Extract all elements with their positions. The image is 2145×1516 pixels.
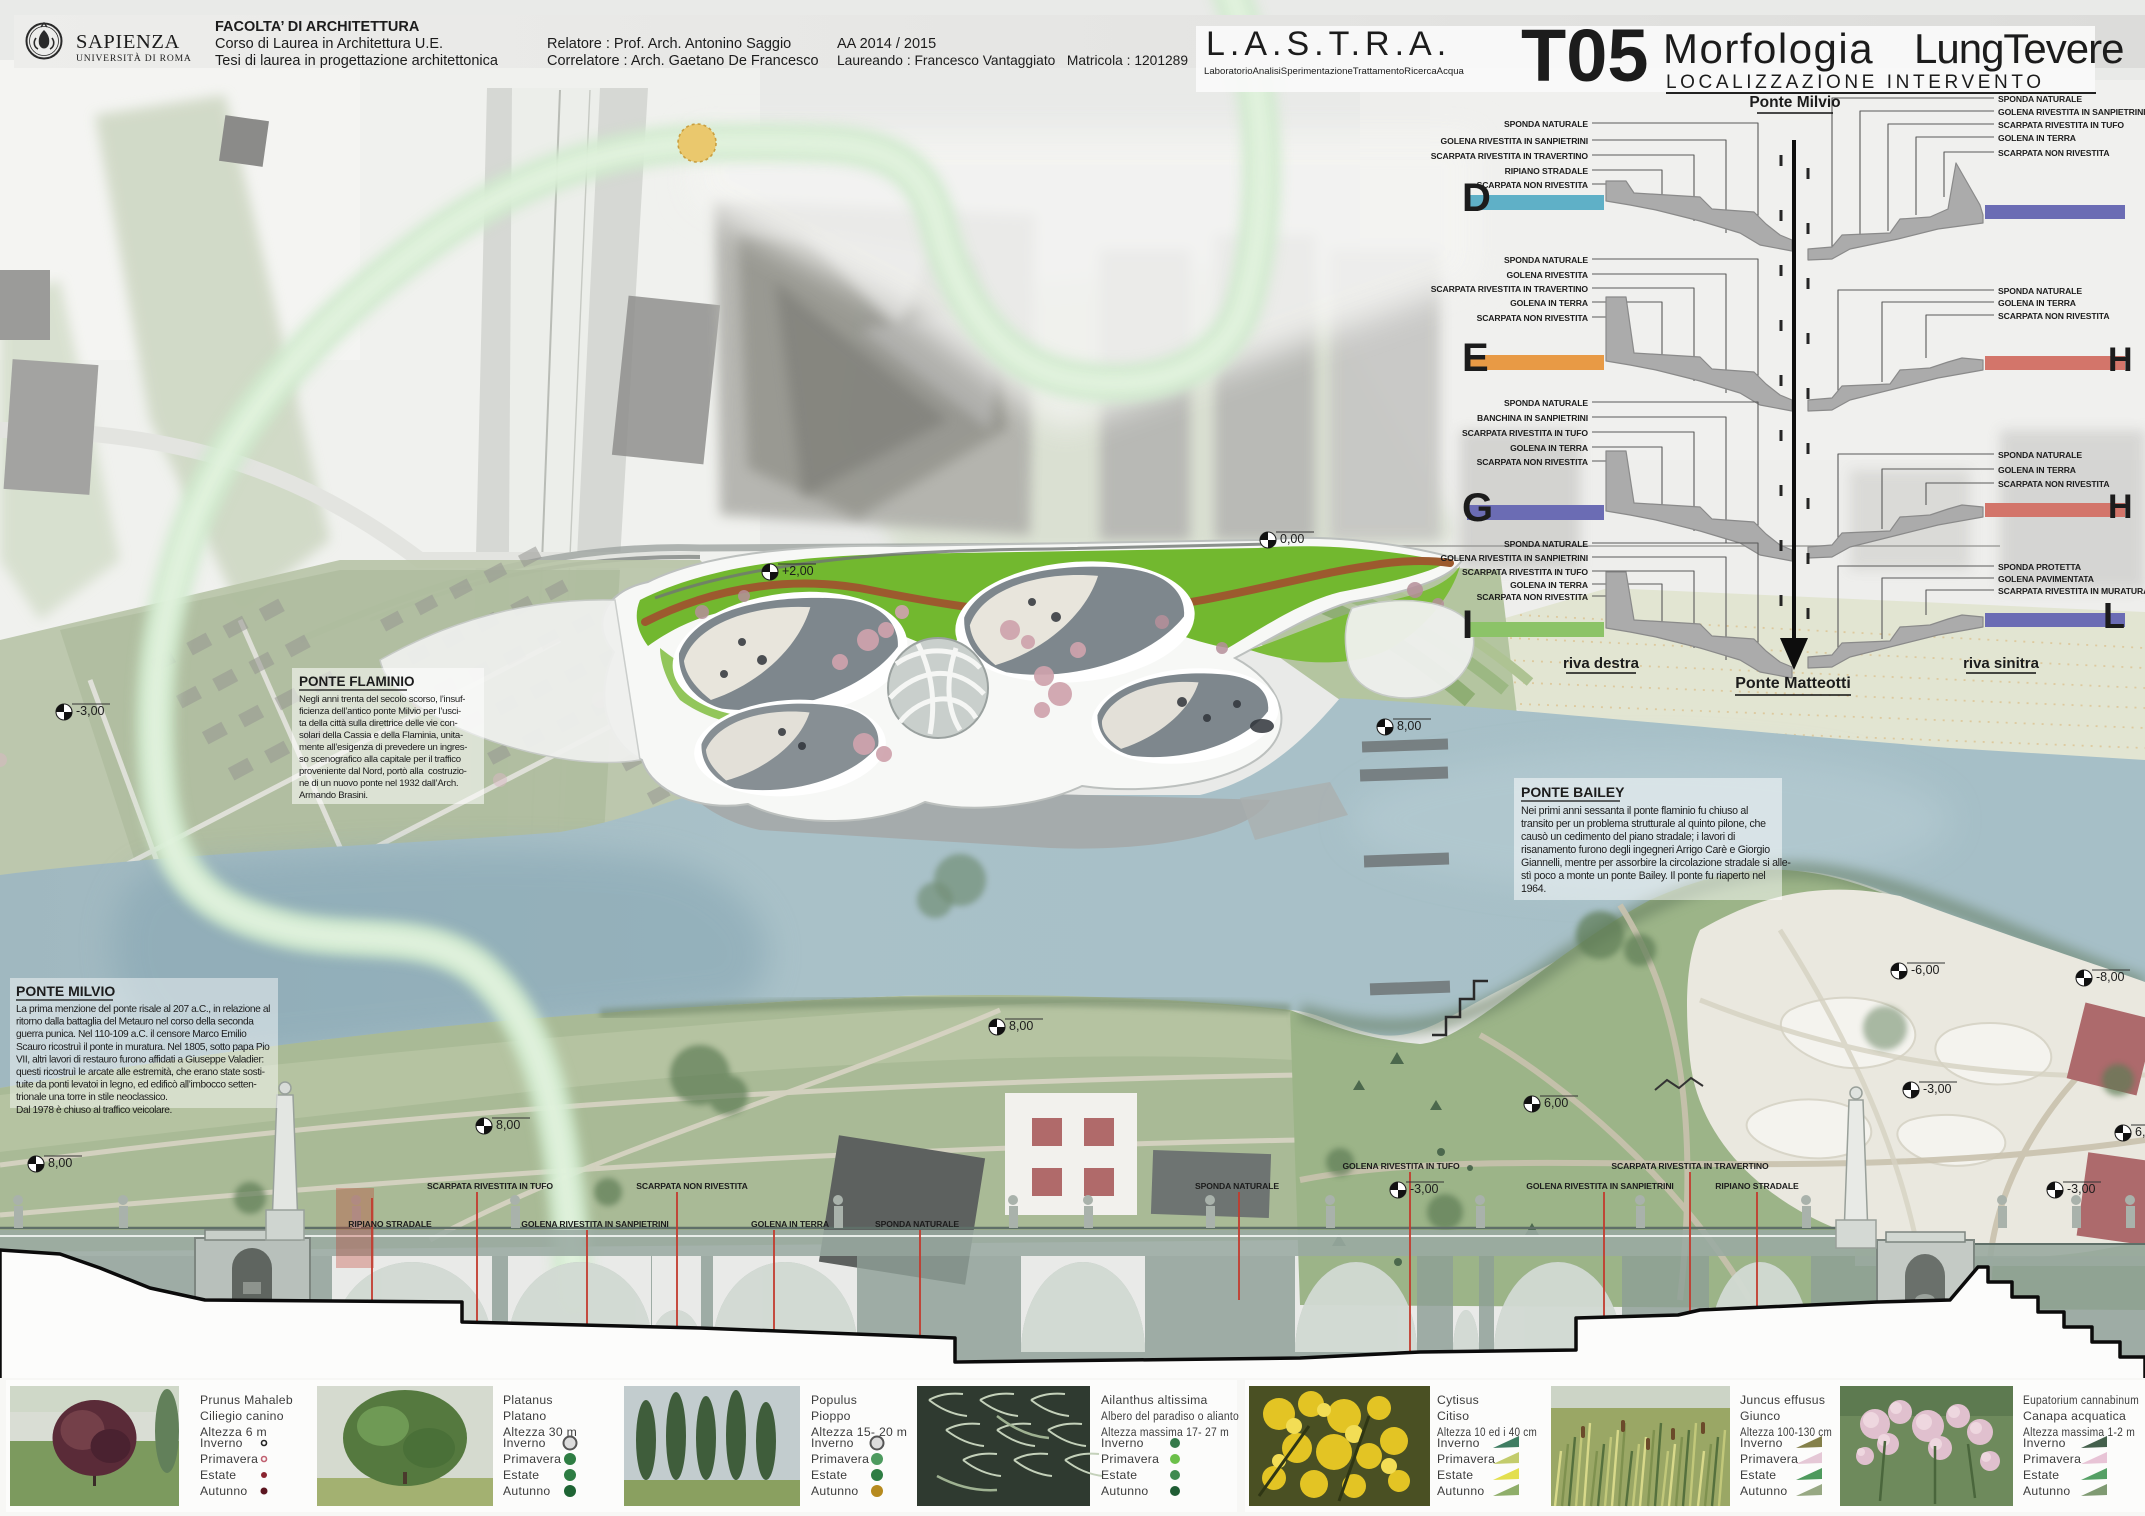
svg-text:Estate: Estate <box>503 1468 539 1482</box>
svg-text:SCARPATA NON RIVESTITA: SCARPATA NON RIVESTITA <box>1998 311 2109 321</box>
svg-text:-6,00: -6,00 <box>1911 963 1940 977</box>
svg-text:Autunno: Autunno <box>1101 1484 1149 1498</box>
svg-text:SPONDA PROTETTA: SPONDA PROTETTA <box>1998 562 2081 572</box>
svg-text:GOLENA PAVIMENTATA: GOLENA PAVIMENTATA <box>1998 574 2094 584</box>
svg-text:I: I <box>1462 603 1473 647</box>
svg-text:Primavera: Primavera <box>1101 1452 1159 1466</box>
svg-text:0,00: 0,00 <box>1280 532 1304 546</box>
svg-text:H: H <box>2108 341 2133 379</box>
svg-text:SCARPATA RIVESTITA IN TUFO: SCARPATA RIVESTITA IN TUFO <box>1462 428 1588 438</box>
svg-text:Cytisus: Cytisus <box>1437 1393 1479 1407</box>
svg-text:Inverno: Inverno <box>1437 1436 1480 1450</box>
svg-text:Ponte Matteotti: Ponte Matteotti <box>1735 675 1851 692</box>
svg-text:Eupatorium cannabinum: Eupatorium cannabinum <box>2023 1393 2139 1407</box>
svg-text:SPONDA NATURALE: SPONDA NATURALE <box>1998 286 2082 296</box>
svg-text:Correlatore : Arch. Gaetano D: Correlatore : Arch. Gaetano De Francesco <box>547 53 819 69</box>
svg-text:RIPIANO STRADALE: RIPIANO STRADALE <box>1505 166 1589 176</box>
svg-text:GOLENA IN TERRA: GOLENA IN TERRA <box>1998 465 2076 475</box>
svg-text:GOLENA RIVESTITA IN SANPIETRIN: GOLENA RIVESTITA IN SANPIETRINI <box>1441 553 1588 563</box>
svg-text:LungTevere: LungTevere <box>1914 25 2124 72</box>
svg-text:Laureando : Francesco Vantaggi: Laureando : Francesco Vantaggiato Matric… <box>837 53 1188 68</box>
svg-text:SCARPATA RIVESTITA IN TRAVERTI: SCARPATA RIVESTITA IN TRAVERTINO <box>1611 1161 1769 1171</box>
svg-text:+2,00: +2,00 <box>782 564 814 578</box>
svg-text:UNIVERSITÀ DI ROMA: UNIVERSITÀ DI ROMA <box>76 52 192 64</box>
svg-text:GOLENA RIVESTITA IN SANPIETRIN: GOLENA RIVESTITA IN SANPIETRINI <box>1441 136 1588 146</box>
svg-text:Autunno: Autunno <box>1740 1484 1788 1498</box>
svg-text:6,00: 6,00 <box>1544 1096 1568 1110</box>
svg-text:Prunus Mahaleb: Prunus Mahaleb <box>200 1393 293 1407</box>
svg-text:GOLENA RIVESTITA IN SANPIETRIN: GOLENA RIVESTITA IN SANPIETRINI <box>1526 1181 1673 1191</box>
svg-text:SAPIENZA: SAPIENZA <box>76 31 180 53</box>
svg-text:8,00: 8,00 <box>1397 719 1421 733</box>
svg-text:GOLENA RIVESTITA: GOLENA RIVESTITA <box>1507 270 1588 280</box>
svg-text:Primavera: Primavera <box>1740 1452 1798 1466</box>
svg-text:SCARPATA NON RIVESTITA: SCARPATA NON RIVESTITA <box>1477 180 1588 190</box>
svg-text:SCARPATA NON RIVESTITA: SCARPATA NON RIVESTITA <box>1477 457 1588 467</box>
svg-text:GOLENA IN TERRA: GOLENA IN TERRA <box>1510 298 1588 308</box>
svg-text:Estate: Estate <box>1101 1468 1137 1482</box>
svg-text:SPONDA NATURALE: SPONDA NATURALE <box>1998 94 2082 104</box>
svg-text:Populus: Populus <box>811 1393 857 1407</box>
svg-text:-3,00: -3,00 <box>76 704 105 718</box>
svg-text:Juncus effusus: Juncus effusus <box>1740 1393 1825 1407</box>
svg-text:Tesi di laurea in progettazion: Tesi di laurea in progettazione architet… <box>215 53 499 69</box>
svg-text:Estate: Estate <box>2023 1468 2059 1482</box>
svg-text:Inverno: Inverno <box>811 1436 854 1450</box>
svg-text:SCARPATA NON RIVESTITA: SCARPATA NON RIVESTITA <box>1477 313 1588 323</box>
svg-text:Autunno: Autunno <box>811 1484 859 1498</box>
svg-text:Primavera: Primavera <box>200 1452 258 1466</box>
svg-text:-8,00: -8,00 <box>2096 970 2125 984</box>
svg-text:Pioppo: Pioppo <box>811 1409 851 1423</box>
svg-text:Estate: Estate <box>811 1468 847 1482</box>
svg-text:Inverno: Inverno <box>503 1436 546 1450</box>
svg-text:GOLENA IN TERRA: GOLENA IN TERRA <box>1998 298 2076 308</box>
svg-text:RIPIANO STRADALE: RIPIANO STRADALE <box>348 1219 432 1229</box>
svg-text:SPONDA NATURALE: SPONDA NATURALE <box>1504 119 1588 129</box>
svg-text:Autunno: Autunno <box>2023 1484 2071 1498</box>
svg-text:Estate: Estate <box>200 1468 236 1482</box>
svg-text:Negli anni trenta del secolo s: Negli anni trenta del secolo scorso, l’i… <box>299 694 467 801</box>
svg-text:Autunno: Autunno <box>200 1484 248 1498</box>
svg-text:AA 2014 / 2015: AA 2014 / 2015 <box>837 36 936 52</box>
svg-text:SPONDA NATURALE: SPONDA NATURALE <box>1504 539 1588 549</box>
svg-text:Platanus: Platanus <box>503 1393 553 1407</box>
svg-text:SPONDA NATURALE: SPONDA NATURALE <box>1998 450 2082 460</box>
svg-text:-3,00: -3,00 <box>1410 1182 1439 1196</box>
svg-text:L: L <box>2103 595 2125 636</box>
svg-text:PONTE FLAMINIO: PONTE FLAMINIO <box>299 674 415 689</box>
svg-text:L.A.S.T.R.A.: L.A.S.T.R.A. <box>1206 25 1451 63</box>
svg-text:SCARPATA RIVESTITA IN TUFO: SCARPATA RIVESTITA IN TUFO <box>427 1181 553 1191</box>
svg-text:Estate: Estate <box>1740 1468 1776 1482</box>
svg-text:Platano: Platano <box>503 1409 546 1423</box>
svg-text:Inverno: Inverno <box>200 1436 243 1450</box>
svg-text:SCARPATA NON RIVESTITA: SCARPATA NON RIVESTITA <box>1477 592 1588 602</box>
svg-text:Albero del paradiso o alianto: Albero del paradiso o alianto <box>1101 1409 1239 1423</box>
svg-text:Canapa acquatica: Canapa acquatica <box>2023 1409 2126 1423</box>
svg-text:Corso di Laurea in Architettur: Corso di Laurea in Architettura U.E. <box>215 36 443 52</box>
svg-text:H: H <box>2108 488 2133 526</box>
svg-text:Ailanthus altissima: Ailanthus altissima <box>1101 1393 1208 1407</box>
svg-text:FACOLTA’ DI ARCHITETTURA: FACOLTA’ DI ARCHITETTURA <box>215 19 420 35</box>
svg-text:BANCHINA IN SANPIETRINI: BANCHINA IN SANPIETRINI <box>1477 413 1588 423</box>
svg-text:E: E <box>1462 336 1489 380</box>
svg-text:8,00: 8,00 <box>48 1156 72 1170</box>
svg-text:Inverno: Inverno <box>1740 1436 1783 1450</box>
svg-text:PONTE BAILEY: PONTE BAILEY <box>1521 784 1625 800</box>
svg-text:SPONDA NATURALE: SPONDA NATURALE <box>1195 1181 1279 1191</box>
svg-text:SCARPATA RIVESTITA IN TRAVERTI: SCARPATA RIVESTITA IN TRAVERTINO <box>1431 151 1589 161</box>
svg-text:Morfologia: Morfologia <box>1663 25 1874 72</box>
svg-text:Nei primi anni sessanta il pon: Nei primi anni sessanta il ponte flamini… <box>1521 805 1791 895</box>
svg-text:GOLENA IN TERRA: GOLENA IN TERRA <box>751 1219 829 1229</box>
svg-text:Primavera: Primavera <box>503 1452 561 1466</box>
svg-text:Primavera: Primavera <box>2023 1452 2081 1466</box>
svg-text:LaboratorioAnalisiSperimentazi: LaboratorioAnalisiSperimentazioneTrattam… <box>1204 66 1465 77</box>
svg-text:Autunno: Autunno <box>503 1484 551 1498</box>
svg-text:riva sinitra: riva sinitra <box>1963 655 2040 672</box>
svg-text:SCARPATA RIVESTITA IN TUFO: SCARPATA RIVESTITA IN TUFO <box>1998 120 2124 130</box>
svg-text:SCARPATA RIVESTITA IN TUFO: SCARPATA RIVESTITA IN TUFO <box>1462 567 1588 577</box>
svg-text:GOLENA RIVESTITA IN SANPIETRIN: GOLENA RIVESTITA IN SANPIETRINI <box>1998 107 2145 117</box>
svg-text:SCARPATA RIVESTITA IN TRAVERTI: SCARPATA RIVESTITA IN TRAVERTINO <box>1431 284 1589 294</box>
svg-text:GOLENA RIVESTITA IN SANPIETRIN: GOLENA RIVESTITA IN SANPIETRINI <box>521 1219 668 1229</box>
svg-text:-3,00: -3,00 <box>2067 1182 2096 1196</box>
svg-text:8,00: 8,00 <box>496 1118 520 1132</box>
svg-text:Primavera: Primavera <box>1437 1452 1495 1466</box>
svg-text:SPONDA NATURALE: SPONDA NATURALE <box>875 1219 959 1229</box>
svg-text:GOLENA IN TERRA: GOLENA IN TERRA <box>1510 580 1588 590</box>
svg-text:riva destra: riva destra <box>1563 655 1640 672</box>
svg-text:Giunco: Giunco <box>1740 1409 1780 1423</box>
svg-text:PONTE MILVIO: PONTE MILVIO <box>16 983 115 999</box>
svg-text:SCARPATA NON RIVESTITA: SCARPATA NON RIVESTITA <box>636 1181 747 1191</box>
svg-text:SPONDA NATURALE: SPONDA NATURALE <box>1504 255 1588 265</box>
svg-text:G: G <box>1462 486 1493 530</box>
svg-text:Citiso: Citiso <box>1437 1409 1469 1423</box>
svg-text:Inverno: Inverno <box>2023 1436 2066 1450</box>
svg-text:Relatore : Prof. Arch. Antonin: Relatore : Prof. Arch. Antonino Saggio <box>547 36 791 52</box>
svg-text:Ciliegio canino: Ciliegio canino <box>200 1409 284 1423</box>
svg-text:-3,00: -3,00 <box>1923 1082 1952 1096</box>
svg-text:D: D <box>1462 176 1491 220</box>
svg-text:Estate: Estate <box>1437 1468 1473 1482</box>
svg-text:Autunno: Autunno <box>1437 1484 1485 1498</box>
svg-text:GOLENA RIVESTITA IN TUFO: GOLENA RIVESTITA IN TUFO <box>1342 1161 1460 1171</box>
svg-text:SPONDA NATURALE: SPONDA NATURALE <box>1504 398 1588 408</box>
svg-text:GOLENA IN TERRA: GOLENA IN TERRA <box>1510 443 1588 453</box>
svg-text:SCARPATA NON RIVESTITA: SCARPATA NON RIVESTITA <box>1998 479 2109 489</box>
svg-text:SCARPATA NON RIVESTITA: SCARPATA NON RIVESTITA <box>1998 148 2109 158</box>
svg-text:6,00: 6,00 <box>2135 1125 2145 1139</box>
svg-text:RIPIANO STRADALE: RIPIANO STRADALE <box>1715 1181 1799 1191</box>
svg-text:GOLENA IN TERRA: GOLENA IN TERRA <box>1998 133 2076 143</box>
svg-text:LOCALIZZAZIONE INTERVENTO: LOCALIZZAZIONE INTERVENTO <box>1666 72 2045 93</box>
svg-text:T05: T05 <box>1521 14 1649 97</box>
svg-text:Inverno: Inverno <box>1101 1436 1144 1450</box>
svg-text:Primavera: Primavera <box>811 1452 869 1466</box>
svg-text:Ponte Milvio: Ponte Milvio <box>1749 94 1840 111</box>
svg-text:8,00: 8,00 <box>1009 1019 1033 1033</box>
